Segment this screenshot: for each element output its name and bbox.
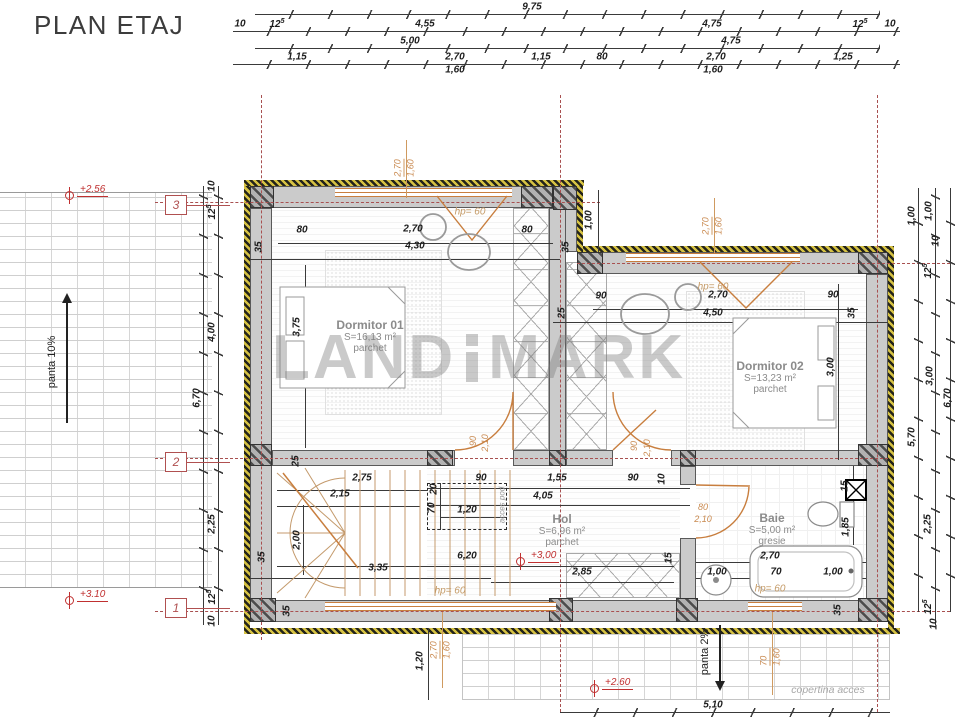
dim-label: 1,60 bbox=[445, 65, 464, 76]
axis-marker: 1 bbox=[165, 598, 187, 618]
dim-label: 2,10 bbox=[480, 434, 490, 452]
dim-label: 1,00 bbox=[707, 567, 726, 578]
dim-label: 125 bbox=[852, 18, 867, 30]
room-rn: Dormitor 02 bbox=[736, 359, 803, 373]
room-rn: Dormitor 01 bbox=[336, 318, 403, 332]
axis-marker: 3 bbox=[165, 195, 187, 215]
dim-label: 2,70 bbox=[706, 52, 725, 63]
dim-label: 1,55 bbox=[547, 473, 566, 484]
dim-label: 1,85 bbox=[841, 517, 852, 536]
axis-marker: 2 bbox=[165, 452, 187, 472]
dim-label: 35 bbox=[833, 604, 844, 615]
dim-label: 80 bbox=[596, 52, 607, 63]
dim-label: 1,20 bbox=[415, 651, 426, 670]
dim-label: 80 bbox=[521, 225, 532, 236]
dim-label: 4,50 bbox=[703, 308, 722, 319]
dim-label: 90 bbox=[827, 290, 838, 301]
axis-marker-line bbox=[187, 462, 230, 463]
dim-label: 10 bbox=[207, 180, 218, 191]
room-label: BaieS=5,00 m²gresie bbox=[749, 511, 795, 547]
dim-label: 25 bbox=[557, 307, 568, 318]
dim-label: acces pod bbox=[498, 487, 507, 523]
dim-label: 2,75 bbox=[352, 473, 371, 484]
dim-label: 2,10 bbox=[642, 439, 652, 457]
dim-label: 15 bbox=[840, 480, 851, 491]
dim-label: 5,00 bbox=[400, 36, 419, 47]
dim-label: 10 bbox=[657, 473, 668, 484]
dim-label: 5,10 bbox=[703, 700, 722, 711]
room-rf: parchet bbox=[539, 537, 585, 548]
dim-label: 2,15 bbox=[330, 489, 349, 500]
dim-label: 70 bbox=[770, 567, 781, 578]
dim-label: 2,25 bbox=[923, 514, 934, 533]
dim-label: 125 bbox=[269, 18, 284, 30]
dim-label: 1,60 bbox=[703, 65, 722, 76]
dim-label: 4,05 bbox=[533, 491, 552, 502]
dim-label: 35 bbox=[847, 307, 858, 318]
dim-label: 1,15 bbox=[287, 52, 306, 63]
axis-marker-line bbox=[187, 608, 230, 609]
dim-label: 1,25 bbox=[833, 52, 852, 63]
dim-label: 35 bbox=[257, 551, 268, 562]
room-rf: parchet bbox=[336, 343, 403, 354]
dim-label: 4,75 bbox=[702, 19, 721, 30]
dim-label: 35 bbox=[282, 605, 293, 616]
room-label: Dormitor 01S=16,13 m²parchet bbox=[336, 318, 403, 354]
dim-label: 90 bbox=[629, 441, 639, 451]
parapet-height-label: hp= 60 bbox=[698, 282, 729, 293]
parapet-height-label: hp= 60 bbox=[435, 586, 466, 597]
level-value: +3.10 bbox=[77, 589, 108, 602]
dim-label: 6,70 bbox=[943, 388, 954, 407]
room-ra: S=13,23 m² bbox=[736, 373, 803, 384]
dim-label: 10 bbox=[207, 615, 218, 626]
dim-label: 80 bbox=[296, 225, 307, 236]
dim-label: 3,35 bbox=[368, 563, 387, 574]
dim-label: 35 bbox=[254, 241, 265, 252]
dim-label: 125 bbox=[922, 263, 934, 278]
level-marker-icon bbox=[590, 684, 599, 693]
dim-label: 2,85 bbox=[572, 567, 591, 578]
level-marker-icon bbox=[516, 557, 525, 566]
dim-label: 20 bbox=[429, 483, 440, 494]
room-label: Dormitor 02S=13,23 m²parchet bbox=[736, 359, 803, 395]
room-rf: gresie bbox=[749, 536, 795, 547]
level-marker-icon bbox=[65, 596, 74, 605]
dim-label: 1,00 bbox=[584, 210, 595, 229]
dim-label: 4,75 bbox=[721, 36, 740, 47]
parapet-height-label: hp= 60 bbox=[755, 584, 786, 595]
dim-label: 4,55 bbox=[415, 19, 434, 30]
dim-label: 2,70 bbox=[760, 551, 779, 562]
dim-label: 9,75 bbox=[522, 2, 541, 13]
dim-label: 2,00 bbox=[292, 530, 303, 549]
dim-label: 125 bbox=[206, 204, 218, 219]
window-size-callout: 2,701,60 bbox=[701, 217, 724, 235]
dim-label: 10 bbox=[234, 19, 245, 30]
dim-label: 2,10 bbox=[694, 514, 712, 524]
level-value: +2.60 bbox=[602, 677, 633, 690]
level-value: +3,00 bbox=[528, 550, 559, 563]
dim-label: 10 bbox=[884, 19, 895, 30]
room-ra: S=6,96 m² bbox=[539, 526, 585, 537]
dim-label: 10 bbox=[929, 618, 940, 629]
dim-label: 90 bbox=[627, 473, 638, 484]
dim-label: 1,00 bbox=[924, 201, 935, 220]
window-size-callout: 701,60 bbox=[759, 648, 782, 666]
room-rf: parchet bbox=[736, 384, 803, 395]
window-size-callout: 2,701,60 bbox=[393, 159, 416, 177]
dim-label: 1,00 bbox=[907, 206, 918, 225]
dim-label: 125 bbox=[206, 589, 218, 604]
dimension-label-layer: 9,75101254,554,75125105,004,751,152,701,… bbox=[0, 0, 957, 720]
dim-label: 4,30 bbox=[405, 241, 424, 252]
parapet-height-label: hp= 60 bbox=[455, 207, 486, 218]
dim-label: 1,20 bbox=[457, 505, 476, 516]
dim-label: 1,15 bbox=[531, 52, 550, 63]
room-rn: Hol bbox=[539, 512, 585, 526]
dim-label: 3,00 bbox=[826, 357, 837, 376]
dim-label: 3,00 bbox=[925, 366, 936, 385]
dim-label: 3,75 bbox=[292, 317, 303, 336]
dim-label: 10 bbox=[931, 235, 942, 246]
dim-label: 80 bbox=[698, 502, 708, 512]
level-marker-icon bbox=[65, 191, 74, 200]
dim-label: 35 bbox=[561, 241, 572, 252]
dim-label: 15 bbox=[664, 552, 675, 563]
level-value: +2.56 bbox=[77, 184, 108, 197]
dim-label: 70 bbox=[427, 502, 438, 513]
dim-label: 5,70 bbox=[907, 427, 918, 446]
floor-plan-canvas: PLAN ETAJ bbox=[0, 0, 957, 720]
room-ra: S=16,13 m² bbox=[336, 332, 403, 343]
room-label: HolS=6,96 m²parchet bbox=[539, 512, 585, 548]
window-size-callout: 2,701,60 bbox=[429, 641, 452, 659]
room-ra: S=5,00 m² bbox=[749, 525, 795, 536]
dim-label: 2,70 bbox=[403, 224, 422, 235]
dim-label: 1,00 bbox=[823, 567, 842, 578]
dim-label: 2,25 bbox=[207, 514, 218, 533]
dim-label: 25 bbox=[291, 455, 302, 466]
dim-label: 6,70 bbox=[192, 388, 203, 407]
dim-label: 90 bbox=[468, 436, 478, 446]
dim-label: 90 bbox=[475, 473, 486, 484]
room-rn: Baie bbox=[749, 511, 795, 525]
dim-label: 125 bbox=[922, 599, 934, 614]
dim-label: 2,70 bbox=[445, 52, 464, 63]
dim-label: 4,00 bbox=[207, 322, 218, 341]
dim-label: 90 bbox=[595, 291, 606, 302]
dim-label: 6,20 bbox=[457, 551, 476, 562]
